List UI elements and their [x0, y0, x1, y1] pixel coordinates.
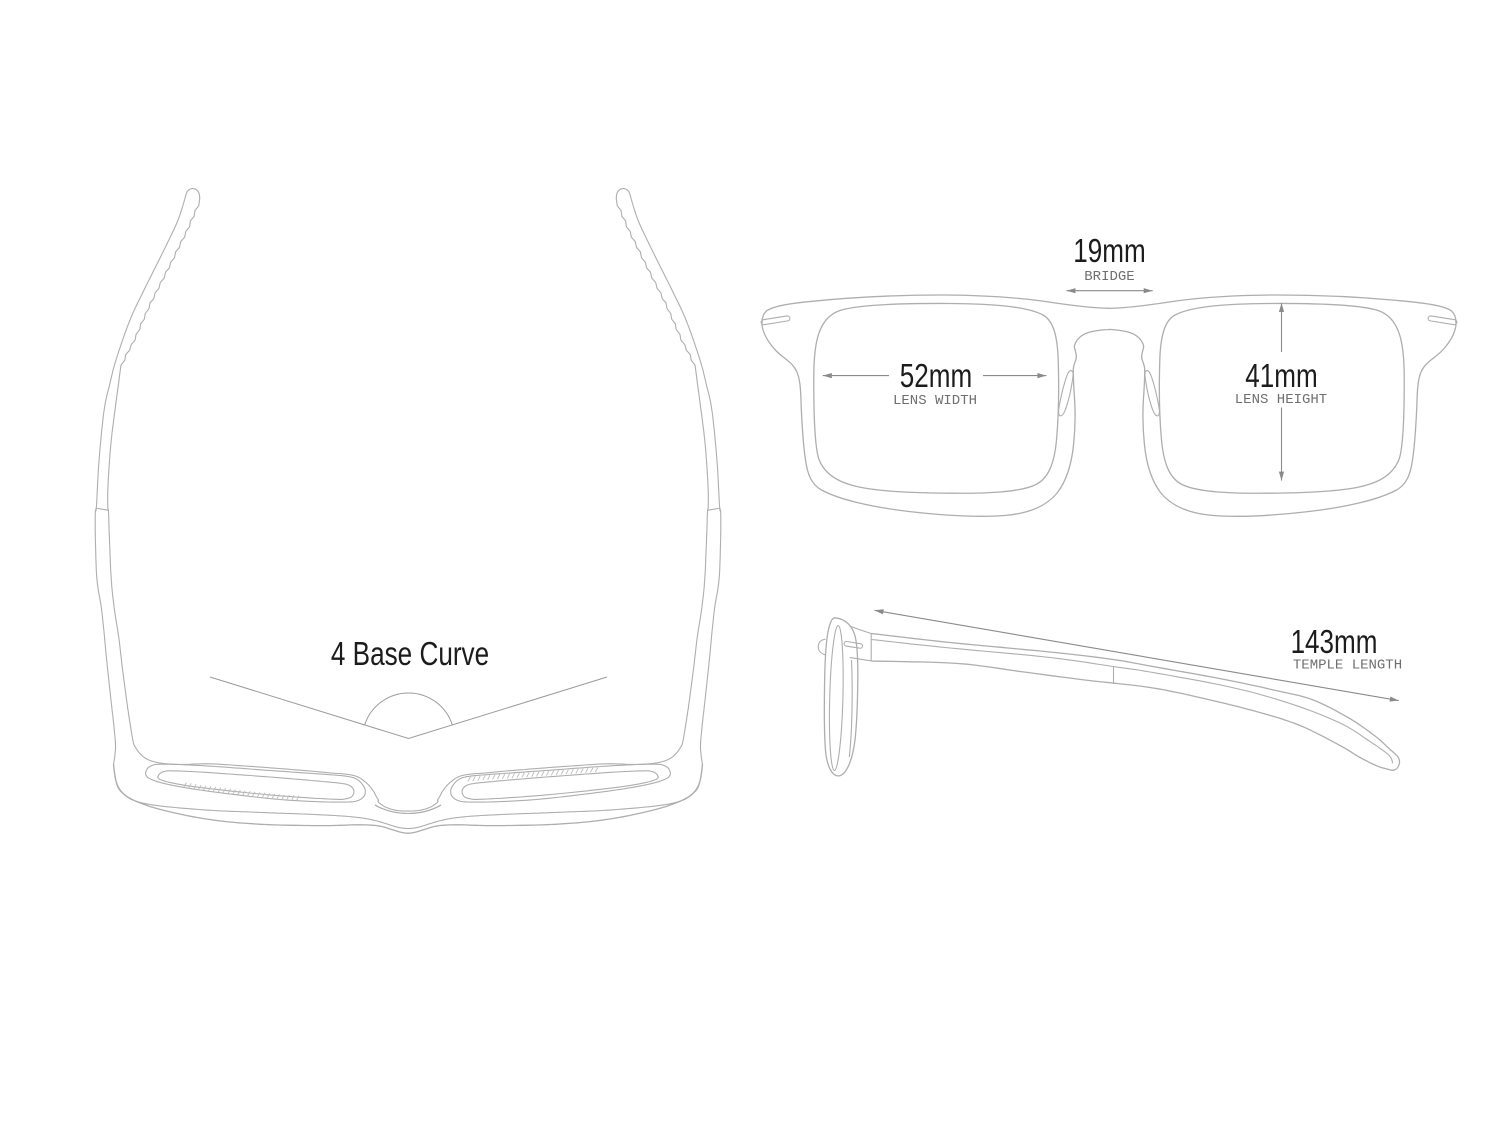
- svg-text:4 Base Curve: 4 Base Curve: [331, 636, 489, 673]
- svg-text:143mm: 143mm: [1291, 624, 1378, 661]
- svg-text:52mm: 52mm: [900, 358, 972, 395]
- svg-text:LENS WIDTH: LENS WIDTH: [893, 393, 977, 409]
- svg-text:LENS HEIGHT: LENS HEIGHT: [1235, 392, 1327, 408]
- svg-text:41mm: 41mm: [1245, 358, 1317, 395]
- svg-text:TEMPLE LENGTH: TEMPLE LENGTH: [1293, 658, 1402, 674]
- svg-text:BRIDGE: BRIDGE: [1084, 269, 1134, 285]
- svg-text:19mm: 19mm: [1073, 233, 1145, 270]
